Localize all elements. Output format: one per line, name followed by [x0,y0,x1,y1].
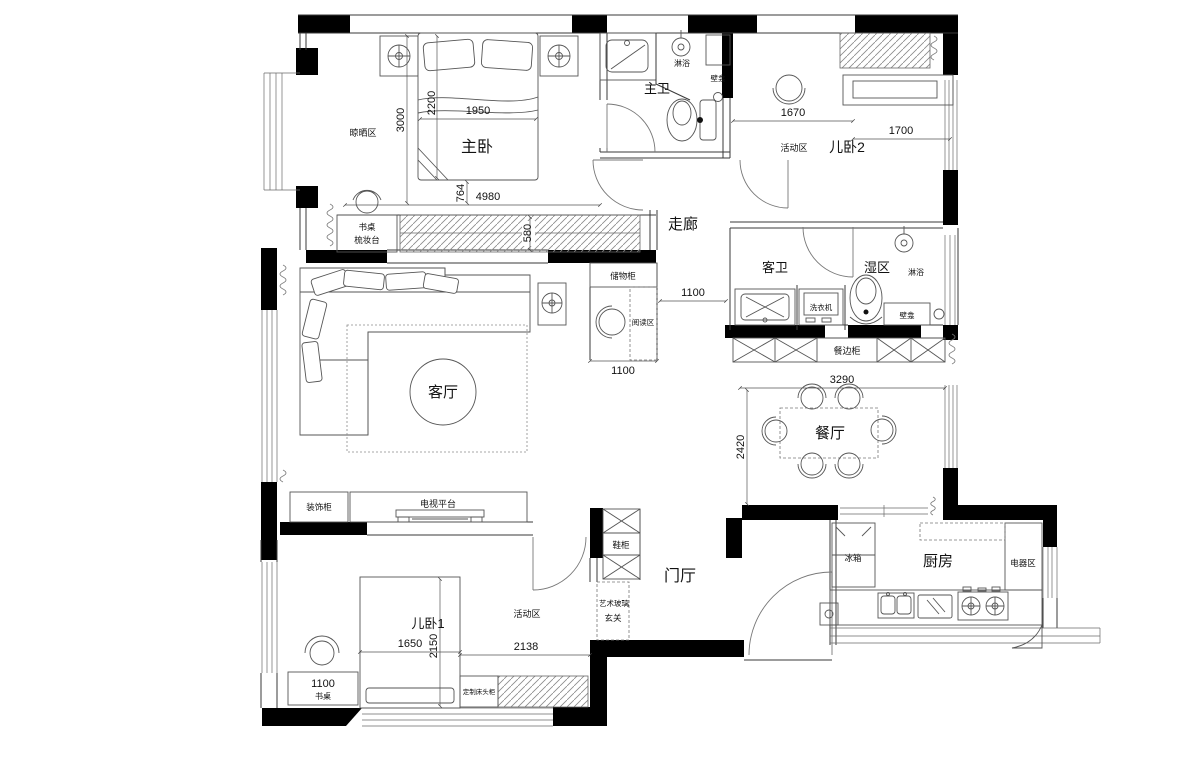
toilet-icon [667,99,716,141]
nightstand-right [540,36,578,76]
room-label-master-bedroom: 主卧 [461,138,493,156]
vanity-sink-icon [600,33,656,80]
dim-1100-reading: 1100 [611,365,635,377]
window-kids1-bottom [362,708,553,726]
label-niche-master: 壁龛 [711,73,726,83]
label-shower-master: 淋浴 [674,58,690,68]
kitchen-sink-icon [878,593,914,619]
door-entry [749,572,832,655]
room-label-corridor: 走廊 [668,216,698,233]
label-desk-line: 书桌 [358,222,376,232]
shower-head-icon [672,30,690,56]
dim-4980: 4980 [476,191,500,203]
room-label-kids2: 儿卧2 [829,139,865,155]
door-master-bath [607,104,655,152]
art-glass-partition [597,582,629,640]
room-label-master-bath: 主卫 [644,81,670,96]
kids1-chair [305,636,339,665]
room-label-kids1: 儿卧1 [411,616,444,631]
label-washing-machine: 洗衣机 [810,302,833,312]
dim-1670: 1670 [781,107,805,119]
text-labels: 主卧 主卫 儿卧2 走廊 客卫 湿区 客厅 餐厅 门厅 厨房 儿卧1 晾晒区 活… [306,58,1036,701]
door-master-bedroom [593,160,643,210]
window-dining-right [945,385,957,468]
structural-walls [261,15,1057,726]
kitchen-fixtures [820,523,1042,648]
living-room-furniture [290,263,657,522]
door-guest-bath [803,227,853,277]
kids2-chair [773,75,805,104]
dim-1700: 1700 [889,125,913,137]
label-tv-platform: 电视平台 [420,498,456,509]
kids2-furniture [773,75,953,105]
master-wardrobe [400,215,640,252]
dim-2420: 2420 [735,435,747,459]
tv-icon [396,510,484,522]
wet-shower-head-icon [895,226,913,252]
room-label-living: 客厅 [428,384,458,401]
guest-sink-icon [735,289,795,325]
lamp-icon [548,45,570,67]
window-living-left [262,310,277,482]
floor-drain [820,603,838,625]
zone-label-activity1: 活动区 [513,608,540,619]
room-label-wet-area: 湿区 [864,260,890,275]
dim-1100-corridor: 1100 [681,287,705,299]
zone-label-drying: 晾晒区 [349,127,376,138]
room-label-guest-bath: 客卫 [762,260,788,275]
stove-icon [958,587,1008,620]
cutting-board-icon [918,595,952,618]
window-wet-area-right [945,235,955,325]
dim-1950: 1950 [466,105,490,117]
dressing-stool [353,190,381,213]
lamp-icon [542,293,562,313]
label-storage-cabinet: 储物柜 [610,271,636,281]
upper-cabinet [920,523,1005,540]
dim-1100-desk: 1100 [311,678,335,690]
label-appliance-area: 电器区 [1010,558,1036,568]
label-sideboard: 餐边柜 [833,345,860,356]
dim-764: 764 [455,184,467,202]
zone-label-reading: 阅读区 [632,317,655,327]
dim-580: 580 [522,224,534,242]
door-kids1 [533,537,586,590]
appliance-cabinet [1005,523,1042,590]
kids1-wardrobe [498,676,588,707]
dim-2200: 2200 [426,91,438,115]
label-desk-kids1: 书桌 [315,691,331,701]
window-kids1-left [262,562,277,673]
floor-plan-page: 主卧 主卫 儿卧2 走廊 客卫 湿区 客厅 餐厅 门厅 厨房 儿卧1 晾晒区 活… [0,0,1200,777]
label-shoe-cabinet: 鞋柜 [612,540,630,550]
label-art-glass: 艺术玻璃 [599,598,629,608]
window-kids2-right [945,80,957,170]
kids2-desk [843,75,953,105]
dim-3000: 3000 [395,108,407,132]
desk-dresser [337,215,397,252]
zone-label-activity2: 活动区 [780,142,807,153]
room-label-entry: 门厅 [664,567,696,585]
wet-toilet-icon [850,275,882,324]
dim-3290: 3290 [830,374,854,386]
side-table-lamp [538,283,566,325]
label-fridge: 冰箱 [844,553,862,563]
label-decor-cabinet: 装饰柜 [306,502,332,512]
bay-window-drying-area [264,73,300,190]
zone-label-foyer: 玄关 [604,613,622,623]
room-label-kitchen: 厨房 [923,553,953,570]
label-custom-headboard: 定制床头柜 [463,687,496,696]
floor-plan-drawing: 主卧 主卫 儿卧2 走廊 客卫 湿区 客厅 餐厅 门厅 厨房 儿卧1 晾晒区 活… [0,0,1200,777]
label-niche-wet: 壁龛 [900,310,915,320]
windows [262,73,1100,726]
dim-2138: 2138 [514,641,538,653]
kids2-wardrobe [840,33,930,68]
window-kitchen-right [1043,547,1057,598]
door-kids2 [740,160,788,208]
label-shower-wet: 淋浴 [908,267,924,277]
nightstand-left [380,36,418,76]
dim-2150: 2150 [428,634,440,658]
label-dresser-line: 梳妆台 [354,235,380,245]
window-kitchen-bottom [830,628,1100,643]
room-label-dining: 餐厅 [815,425,845,442]
dim-1650: 1650 [398,638,422,650]
corner-unit [1012,625,1042,648]
